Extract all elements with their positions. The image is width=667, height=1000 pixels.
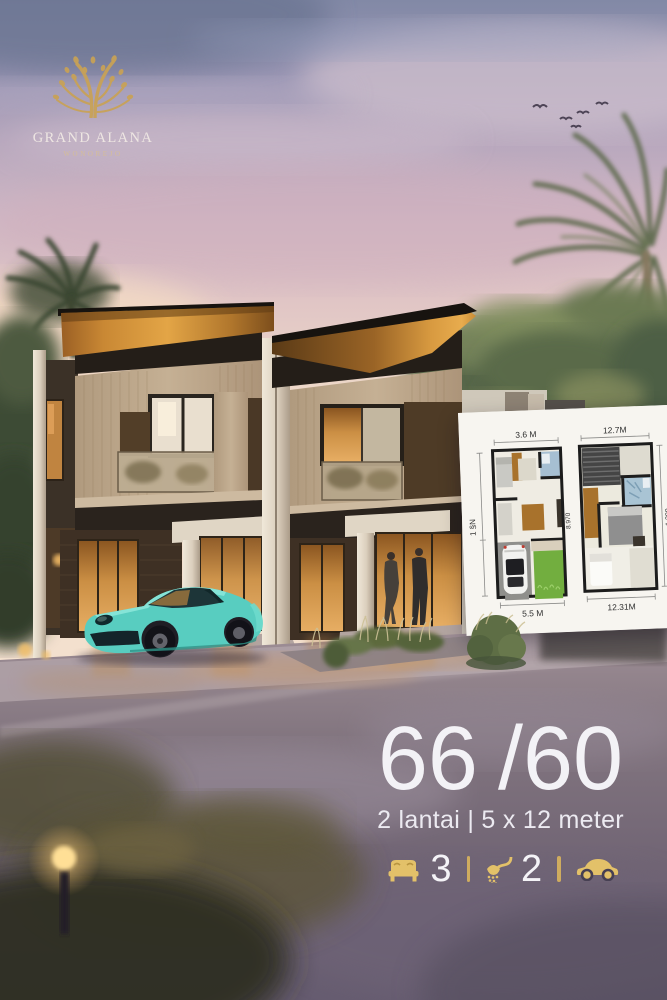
svg-text:8.970: 8.970 <box>565 512 573 529</box>
svg-text:12.7M: 12.7M <box>603 425 627 436</box>
svg-text:1 §N: 1 §N <box>468 519 478 536</box>
svg-text:3.6 M: 3.6 M <box>515 429 537 440</box>
svg-text:12.31M: 12.31M <box>607 601 636 612</box>
